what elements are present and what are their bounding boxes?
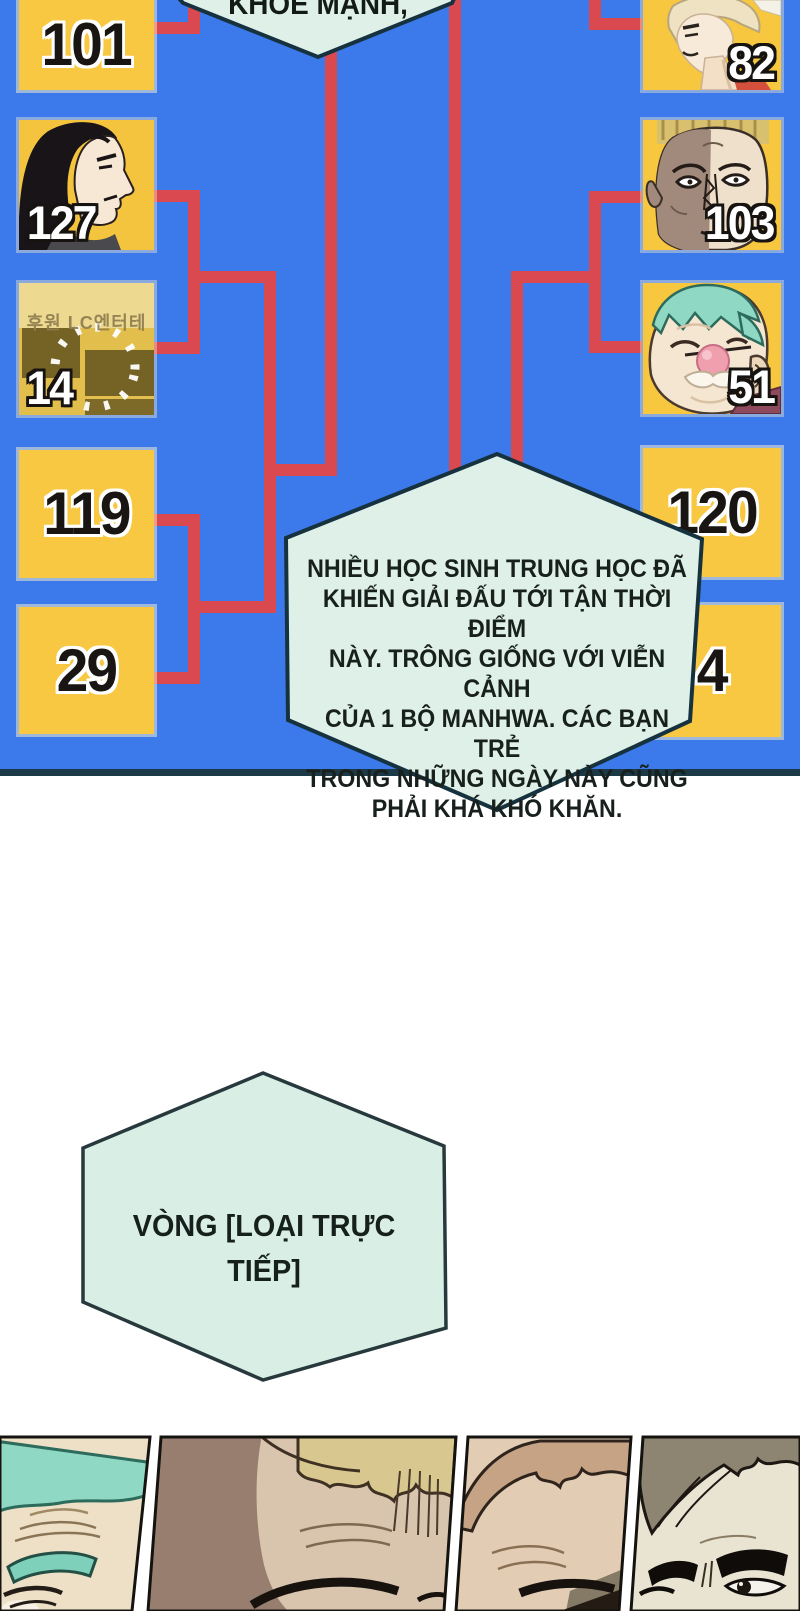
bubble-line: PHẢI KHÁ KHÓ KHĂN.: [300, 794, 694, 824]
bracket-box-103: 103: [643, 120, 781, 250]
round-title-line: VÒNG [LOẠI TRỰC: [96, 1203, 433, 1248]
bubble-line: NHIỀU HỌC SINH TRUNG HỌC ĐÃ: [300, 554, 694, 584]
bubble-line: CỦA 1 BỘ MANHWA. CÁC BẠN TRẺ: [300, 704, 694, 764]
panel-dark-haired-man-glaring: [629, 1435, 800, 1611]
bubble-line: TRONG NHỮNG NGÀY NÀY CŨNG: [300, 764, 694, 794]
bracket-box-127: 127: [19, 120, 154, 250]
bracket-box-51: 51: [643, 283, 781, 414]
manhwa-page: 101 127 후원 LC엔터테 14 119 29: [0, 0, 800, 1611]
box-number: 14: [26, 364, 72, 411]
top-speech-bubble-text: KHỎE MẠNH,: [171, 0, 465, 22]
box-number: 51: [728, 363, 774, 410]
comic-strip: [0, 1435, 800, 1611]
bracket-box-14: 후원 LC엔터테 14: [19, 283, 154, 415]
bubble-line: NÀY. TRÔNG GIỐNG VỚI VIỄN CẢNH: [300, 644, 694, 704]
bubble-line: KHIẾN GIẢI ĐẤU TỚI TẬN THỜI ĐIỂM: [300, 584, 694, 644]
box-number: 103: [704, 199, 773, 246]
round-title-line: TIẾP]: [96, 1248, 433, 1293]
round-title-text: VÒNG [LOẠI TRỰC TIẾP]: [96, 1203, 433, 1293]
panel-blond-man-shadowed: [144, 1435, 460, 1611]
box-number: 127: [27, 199, 96, 246]
middle-speech-bubble-text: NHIỀU HỌC SINH TRUNG HỌC ĐÃ KHIẾN GIẢI Đ…: [300, 554, 694, 824]
sponsor-card-text: 후원 LC엔터테: [19, 309, 154, 335]
panel-brown-haired-man: [454, 1435, 634, 1611]
